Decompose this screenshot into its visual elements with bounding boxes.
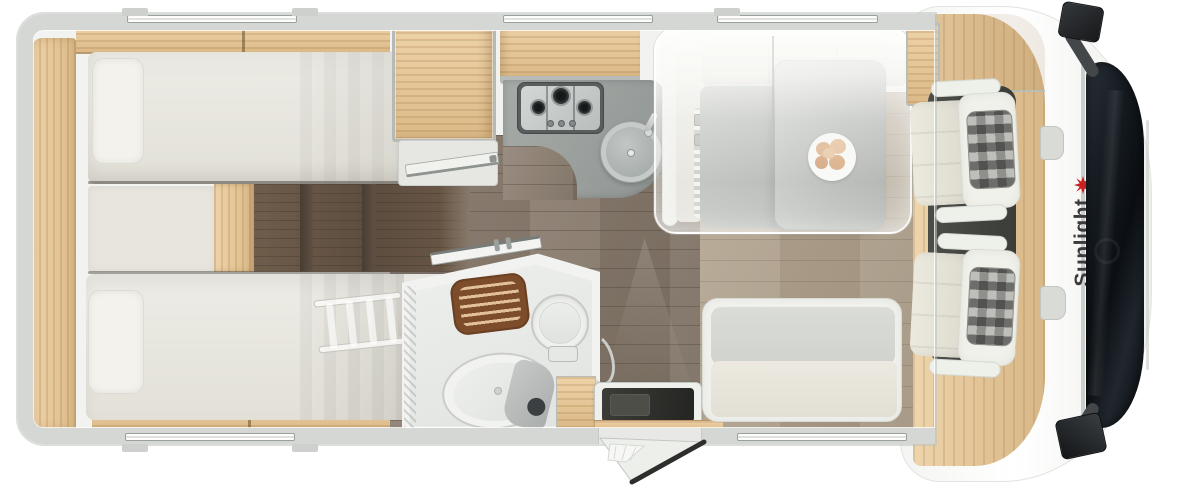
steering-wheel-hint [1094,238,1120,264]
window-marker-kitchen [503,15,653,23]
roof-tab [292,444,318,452]
window-marker-bedroom-bottom [125,433,295,441]
window-marker-lounge-bottom [737,433,907,441]
seat-headrest-checkered [966,109,1016,189]
front-body-crease [1146,120,1149,370]
mirror-head-bottom [1054,412,1107,461]
body-walls [18,14,935,444]
seat-armrest [928,358,1001,378]
mirror-head-top [1057,1,1105,44]
cab-vent [1040,126,1064,160]
roof-tab [292,8,318,16]
seat-headrest-checkered [966,266,1016,346]
window-marker-bedroom-top [127,15,297,23]
roof-tab [122,8,148,16]
seat-armrest [935,204,1008,224]
window-marker-dinette [717,15,878,23]
windshield [1086,62,1144,428]
cab-vent [1040,286,1066,320]
entry-door-open [596,436,708,488]
floorplan-image: Sunlight [0,0,1200,488]
roof-tab [714,8,740,16]
roof-tab [122,444,148,452]
